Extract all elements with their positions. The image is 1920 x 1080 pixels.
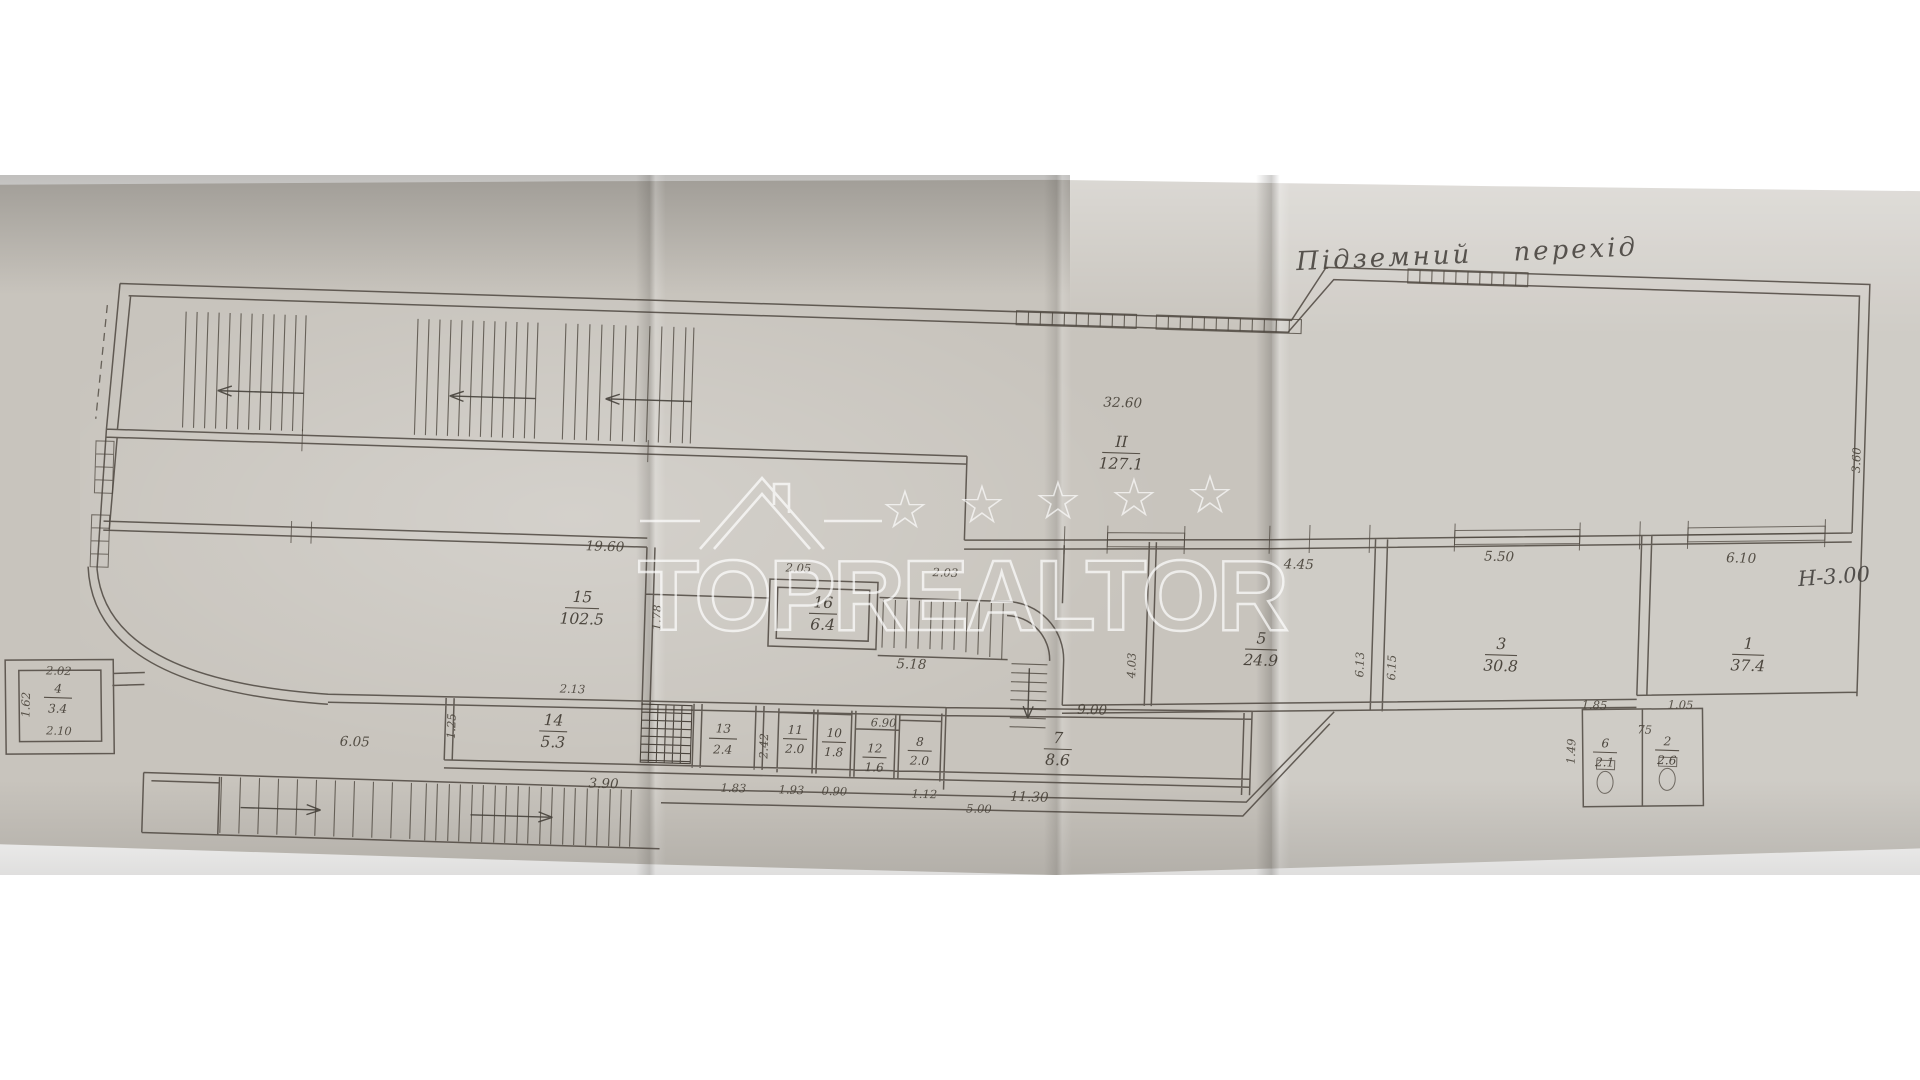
dim-r5-right: 6.13: [1352, 652, 1367, 678]
dim-r13-bot: 1.83: [720, 781, 746, 796]
stair-arrow-central: [1023, 668, 1035, 718]
svg-text:4: 4: [53, 682, 62, 696]
dim-window-room3: 5.50: [1484, 548, 1515, 565]
svg-text:2.6: 2.6: [1656, 753, 1677, 768]
dim-r5-left: 4.03: [1124, 652, 1139, 679]
svg-text:3: 3: [1496, 635, 1507, 653]
dim-top-length: 32.60: [1103, 394, 1143, 411]
dim-wc-mid: 75: [1637, 722, 1652, 736]
top-wall-window-hatches: [1016, 257, 1528, 341]
svg-text:1.8: 1.8: [824, 745, 844, 760]
svg-text:24.9: 24.9: [1242, 651, 1278, 670]
svg-text:2.0: 2.0: [909, 754, 930, 769]
dim-bottom-corridor: 6.05: [339, 734, 370, 751]
svg-text:II: II: [1114, 433, 1129, 451]
svg-text:10: 10: [826, 726, 842, 740]
svg-text:5.3: 5.3: [540, 733, 565, 752]
svg-text:2.4: 2.4: [712, 742, 733, 757]
dim-right-height: 3.60: [1849, 447, 1864, 473]
dim-r4-top: 2.02: [45, 663, 72, 678]
dim-r4-left: 1.62: [18, 692, 33, 718]
svg-text:1: 1: [1743, 635, 1753, 653]
shaft-grid: [640, 704, 692, 764]
svg-text:11: 11: [787, 723, 803, 737]
dim-r7-bot: 11.30: [1010, 789, 1050, 806]
stair-arrows-top: [218, 382, 692, 411]
dim-stair-top: 2.03: [931, 565, 958, 580]
dim-r11-bot: 1.93: [778, 782, 804, 797]
svg-text:6.4: 6.4: [810, 615, 835, 634]
dim-r14-bot: 3.90: [588, 775, 619, 792]
dim-stair-width: 5.18: [896, 656, 927, 673]
svg-text:2.0: 2.0: [784, 742, 805, 757]
dim-r12-bot: 1.12: [911, 787, 937, 802]
svg-text:3.4: 3.4: [48, 701, 68, 716]
svg-text:2: 2: [1662, 734, 1671, 748]
dim-r8-top: 6.90: [871, 715, 897, 730]
svg-text:127.1: 127.1: [1098, 454, 1143, 473]
svg-text:15: 15: [572, 588, 592, 607]
svg-text:1.6: 1.6: [864, 760, 884, 775]
floor-plan-svg: II 127.1 15 102.5 16 6.4 14 5.3 13 2.4: [0, 0, 1920, 1080]
dim-wc-right-top: 1.05: [1668, 697, 1694, 712]
svg-text:7: 7: [1053, 729, 1064, 747]
room-fraction-lines: [43, 419, 1770, 785]
height-note-handwritten: Н-3.00: [1796, 562, 1871, 591]
wall-ticks: [291, 429, 1827, 591]
dim-r4-bot: 2.10: [45, 723, 72, 738]
dim-r16-top: 2.05: [784, 561, 811, 576]
room-label-4: 4 3.4: [48, 681, 68, 716]
stairs-hatch-top-passage: [183, 312, 694, 444]
svg-text:13: 13: [715, 721, 731, 735]
svg-text:102.5: 102.5: [559, 609, 604, 628]
svg-text:8: 8: [916, 735, 924, 749]
dimension-labels: 32.60 19.60 2.05 2.03 1.78 5.18 4.45 5.5…: [16, 361, 1876, 844]
svg-text:12: 12: [867, 741, 883, 755]
dim-r7-top: 9.00: [1077, 702, 1108, 719]
svg-text:14: 14: [543, 711, 563, 730]
dim-2-42: 2.42: [756, 733, 771, 760]
dim-r10-bot: 0.90: [821, 784, 847, 799]
dim-wc-left-top: 1.85: [1581, 698, 1607, 713]
dim-strip: 5.00: [966, 801, 992, 816]
svg-text:2.1: 2.1: [1594, 755, 1615, 770]
dim-r3-left: 6.15: [1384, 655, 1399, 681]
dim-room15-width: 19.60: [585, 538, 625, 555]
dim-r14-left: 1.25: [444, 713, 459, 739]
dim-window-room1: 6.10: [1726, 550, 1757, 567]
svg-text:16: 16: [813, 593, 833, 612]
dim-r14-top: 2.13: [558, 681, 585, 696]
svg-text:37.4: 37.4: [1730, 656, 1765, 675]
window-hatches: [90, 441, 1826, 621]
svg-text:6: 6: [1601, 736, 1609, 750]
svg-text:30.8: 30.8: [1483, 657, 1518, 676]
svg-text:8.6: 8.6: [1045, 751, 1070, 770]
screenshot: Підземний перехід: [0, 0, 1920, 1080]
dim-wc-left: 1.49: [1564, 738, 1579, 764]
svg-text:5: 5: [1256, 629, 1266, 647]
dashed-wall: [96, 305, 108, 419]
dim-corridor: 4.45: [1282, 556, 1314, 573]
dim-r16-left: 1.78: [649, 605, 664, 631]
